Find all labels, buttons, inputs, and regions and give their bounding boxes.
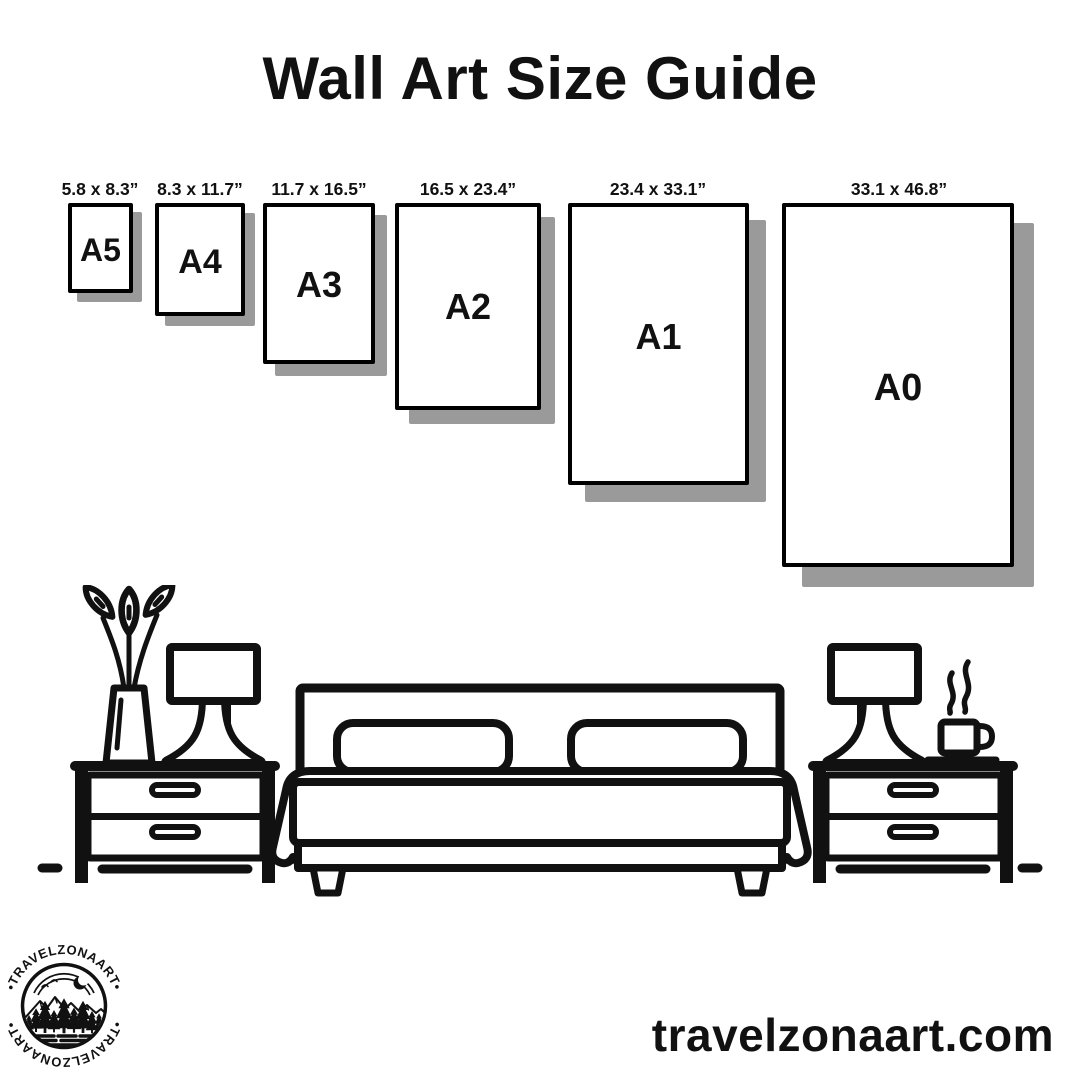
size-label-a5: 5.8 x 8.3”	[62, 179, 139, 200]
frame-letter-a1: A1	[572, 319, 745, 355]
size-label-a2: 16.5 x 23.4”	[420, 179, 516, 200]
size-label-a0: 33.1 x 46.8”	[851, 179, 947, 200]
website-url: travelzonaart.com	[652, 1008, 1054, 1062]
pillow-icon	[571, 723, 743, 772]
steam-icon	[950, 662, 969, 713]
frame-letter-a5: A5	[72, 234, 129, 266]
mountain-badge-logo-icon: •TRAVELZONAART• •TRAVELZONAART•	[0, 939, 130, 1073]
size-guide-poster: Wall Art Size Guide 5.8 x 8.3” 8.3 x 11.…	[0, 0, 1080, 1080]
double-bed-icon	[272, 688, 808, 893]
frame-letter-a2: A2	[399, 289, 537, 325]
table-lamp-right-icon	[826, 647, 923, 763]
nightstand-right-icon	[813, 766, 1013, 883]
frame-a3: A3	[263, 203, 375, 364]
nightstand-left-icon	[75, 766, 275, 883]
frame-a0: A0	[782, 203, 1014, 567]
frame-letter-a3: A3	[267, 267, 371, 303]
bedroom-scene-illustration	[0, 585, 1080, 905]
size-label-a3: 11.7 x 16.5”	[271, 179, 366, 200]
frame-letter-a4: A4	[159, 245, 241, 279]
size-label-a4: 8.3 x 11.7”	[157, 179, 243, 200]
frame-letter-a0: A0	[786, 369, 1010, 407]
mattress-front	[293, 782, 787, 843]
frame-a1: A1	[568, 203, 749, 485]
frame-a4: A4	[155, 203, 245, 316]
pillow-icon	[337, 723, 509, 772]
table-lamp-left-icon	[165, 647, 262, 763]
page-title: Wall Art Size Guide	[0, 44, 1080, 113]
bed-base	[298, 843, 782, 868]
coffee-cup-icon	[928, 662, 996, 760]
frame-a5: A5	[68, 203, 133, 293]
size-label-a1: 23.4 x 33.1”	[610, 179, 706, 200]
flower-vase-icon	[81, 585, 178, 763]
bed-leg	[313, 868, 343, 893]
frame-a2: A2	[395, 203, 541, 410]
bed-leg	[737, 868, 767, 893]
